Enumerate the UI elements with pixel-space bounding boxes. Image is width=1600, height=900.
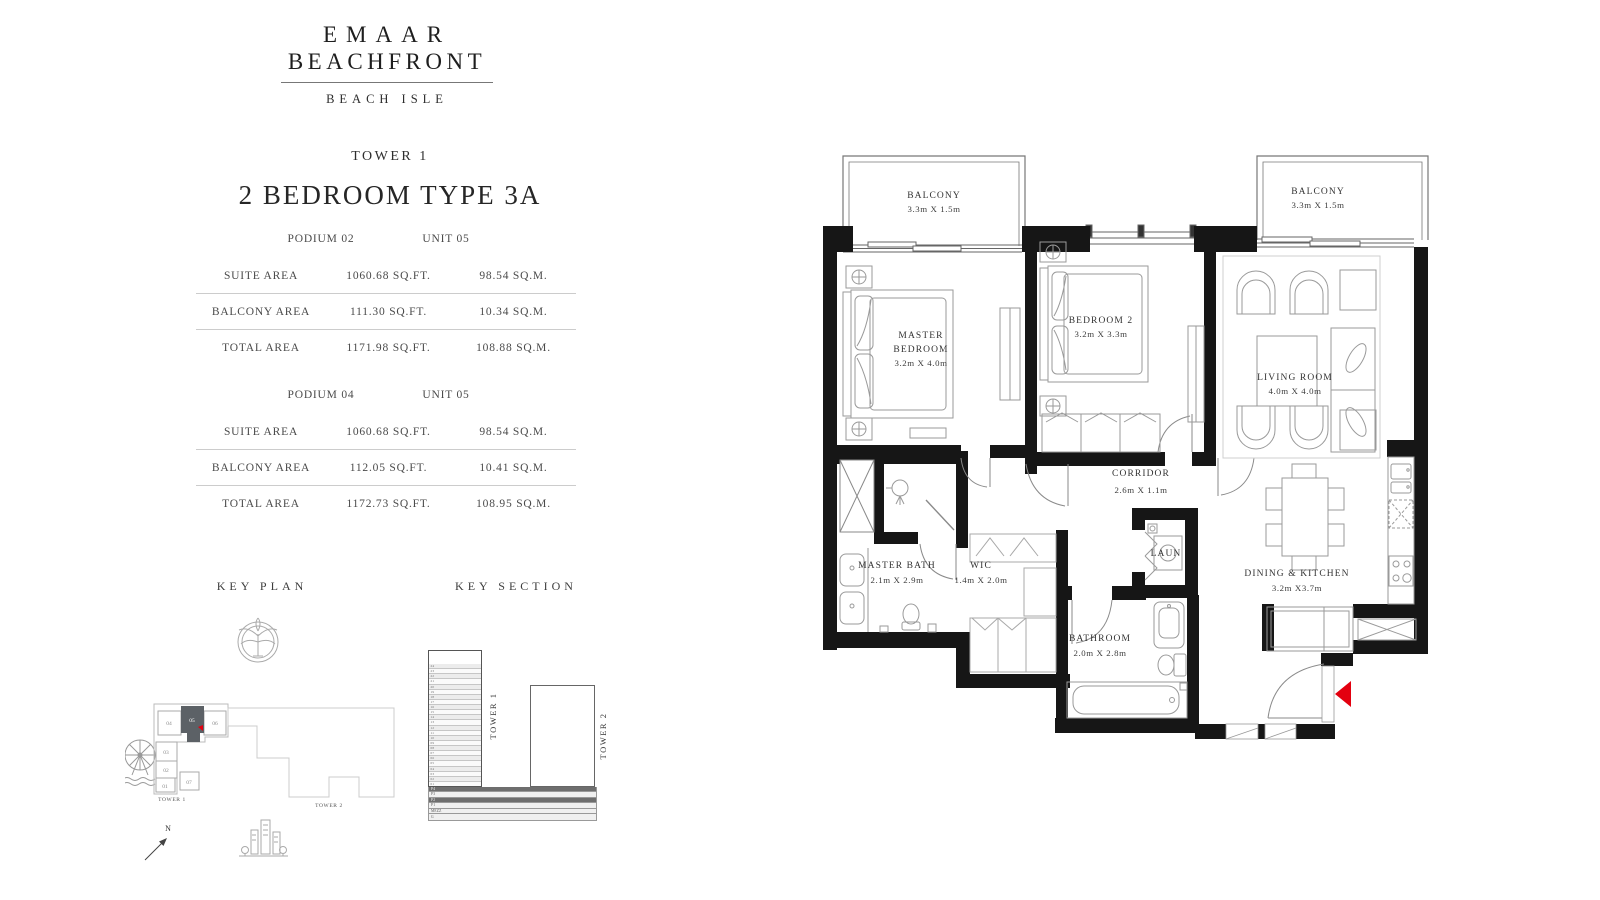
row-sqm: 10.34 SQ.M. xyxy=(451,306,576,318)
brand-divider xyxy=(281,82,493,83)
table-row: TOTAL AREA 1171.98 SQ.FT. 108.88 SQ.M. xyxy=(196,330,576,365)
row-sqft: 112.05 SQ.FT. xyxy=(326,462,451,474)
floor-row: 01 xyxy=(429,782,481,786)
master-bath-fixtures xyxy=(840,460,936,632)
brand-line2: BEACHFRONT xyxy=(281,49,493,75)
room-dims: 2.0m X 2.8m xyxy=(1073,648,1126,658)
brand-logo: EMAAR BEACHFRONT BEACH ISLE xyxy=(281,22,493,107)
table-row: BALCONY AREA 111.30 SQ.FT. 10.34 SQ.M. xyxy=(196,294,576,330)
balcony-right-rail xyxy=(1257,156,1428,240)
tower1-footprint-label: TOWER 1 xyxy=(158,797,186,803)
area-table-podium-04: PODIUM 04 UNIT 05 SUITE AREA 1060.68 SQ.… xyxy=(196,389,576,521)
room-dims: 3.2m X 4.0m xyxy=(894,358,947,368)
room-label: BEDROOM 2 xyxy=(1069,316,1134,326)
room-label: BALCONY xyxy=(907,191,961,201)
room-dims: 2.1m X 2.9m xyxy=(870,575,923,585)
north-arrow-icon: N xyxy=(145,824,171,860)
podium-row: G xyxy=(428,814,597,821)
ferris-wheel-icon xyxy=(125,740,155,786)
table-row: SUITE AREA 1060.68 SQ.FT. 98.54 SQ.M. xyxy=(196,258,576,294)
row-sqm: 98.54 SQ.M. xyxy=(451,426,576,438)
podium-levels: P4 P3 P2 P1 MEZZ G xyxy=(428,787,597,821)
key-section-diagram: 2423222120191817161514131211100908070605… xyxy=(420,640,620,830)
wic-closets xyxy=(970,534,1056,672)
room-dims: 3.2m X 3.3m xyxy=(1074,329,1127,339)
room-label: MASTER BATH xyxy=(858,561,936,571)
tower2-section-label: TOWER 2 xyxy=(598,696,608,776)
key-plan-heading: KEY PLAN xyxy=(196,579,328,594)
row-sqm: 108.95 SQ.M. xyxy=(451,498,576,510)
tower1-floor-stripes: 2423222120191817161514131211100908070605… xyxy=(429,664,481,786)
podium-label: PODIUM 04 xyxy=(258,389,384,401)
room-dims: 4.0m X 4.0m xyxy=(1268,386,1321,396)
unit-04-label: 04 xyxy=(166,721,172,727)
unit-01-label: 01 xyxy=(162,784,168,790)
row-sqm: 108.88 SQ.M. xyxy=(451,342,576,354)
row-sqft: 111.30 SQ.FT. xyxy=(326,306,451,318)
bathroom-fixtures xyxy=(1067,602,1187,718)
room-label: BATHROOM xyxy=(1069,634,1131,644)
room-labels: BALCONY 3.3m X 1.5m BALCONY 3.3m X 1.5m … xyxy=(858,187,1350,658)
room-label: MASTER xyxy=(898,331,943,341)
brochure-page: EMAAR BEACHFRONT BEACH ISLE TOWER 1 2 BE… xyxy=(0,0,1600,900)
row-sqft: 1060.68 SQ.FT. xyxy=(326,426,451,438)
svg-text:N: N xyxy=(165,824,171,833)
key-section-heading: KEY SECTION xyxy=(440,579,592,594)
floor-plan: BALCONY 3.3m X 1.5m BALCONY 3.3m X 1.5m … xyxy=(810,140,1440,750)
row-sqft: 1060.68 SQ.FT. xyxy=(326,270,451,282)
row-label: BALCONY AREA xyxy=(196,306,326,318)
row-label: BALCONY AREA xyxy=(196,462,326,474)
tower1-section-label: TOWER 1 xyxy=(488,676,498,756)
row-label: TOTAL AREA xyxy=(196,342,326,354)
unit-07-label: 07 xyxy=(186,780,192,786)
row-label: SUITE AREA xyxy=(196,426,326,438)
room-label: DINING & KITCHEN xyxy=(1244,569,1349,579)
room-dims: 3.3m X 1.5m xyxy=(907,204,960,214)
tower2-section xyxy=(530,685,595,787)
brand-line1: EMAAR xyxy=(281,22,493,48)
balcony-left-rail xyxy=(843,156,1025,246)
tower2-footprint: TOWER 2 xyxy=(228,708,394,809)
unit-number-label: UNIT 05 xyxy=(388,233,504,245)
page-title: 2 BEDROOM TYPE 3A xyxy=(196,180,584,211)
room-dims: 1.4m X 2.0m xyxy=(954,575,1007,585)
window-bedroom2 xyxy=(1086,225,1196,244)
unit-03-label: 03 xyxy=(163,750,169,756)
walls xyxy=(823,226,1428,739)
entry-arrow xyxy=(1335,681,1351,707)
area-table-podium-02: PODIUM 02 UNIT 05 SUITE AREA 1060.68 SQ.… xyxy=(196,233,576,365)
unit-number-label: UNIT 05 xyxy=(388,389,504,401)
row-label: TOTAL AREA xyxy=(196,498,326,510)
row-sqft: 1172.73 SQ.FT. xyxy=(326,498,451,510)
unit-02-label: 02 xyxy=(163,768,169,774)
window-master xyxy=(843,242,1022,252)
room-dims: 2.6m X 1.1m xyxy=(1114,485,1167,495)
tower2-footprint-label: TOWER 2 xyxy=(315,803,343,809)
dining-kitchen-furniture xyxy=(1266,457,1416,651)
living-room-furniture xyxy=(1223,256,1380,458)
row-sqm: 98.54 SQ.M. xyxy=(451,270,576,282)
bedroom2-furniture xyxy=(1040,242,1204,452)
unit-06-label: 06 xyxy=(212,721,218,727)
podium-label: PODIUM 02 xyxy=(258,233,384,245)
table-row: BALCONY AREA 112.05 SQ.FT. 10.41 SQ.M. xyxy=(196,450,576,486)
row-label: SUITE AREA xyxy=(196,270,326,282)
row-sqft: 1171.98 SQ.FT. xyxy=(326,342,451,354)
table-row: TOTAL AREA 1172.73 SQ.FT. 108.95 SQ.M. xyxy=(196,486,576,521)
tower-label: TOWER 1 xyxy=(196,149,584,165)
room-label: LIVING ROOM xyxy=(1257,373,1333,383)
city-skyline-icon xyxy=(239,820,288,856)
room-label: BALCONY xyxy=(1291,187,1345,197)
table-row: SUITE AREA 1060.68 SQ.FT. 98.54 SQ.M. xyxy=(196,414,576,450)
room-dims: 3.2m X3.7m xyxy=(1272,583,1322,593)
unit-heading: TOWER 1 2 BEDROOM TYPE 3A xyxy=(196,149,584,211)
key-plan-map: 04 05 06 03 02 01 07 TOWER 1 TOWER 2 N xyxy=(125,598,425,883)
brand-subtitle: BEACH ISLE xyxy=(281,92,493,107)
room-label: CORRIDOR xyxy=(1112,469,1170,479)
room-dims: 3.3m X 1.5m xyxy=(1291,200,1344,210)
window-living xyxy=(1257,237,1414,247)
tower1-section: 2423222120191817161514131211100908070605… xyxy=(428,650,482,787)
highlighted-unit-05 xyxy=(181,706,204,742)
unit-05-label: 05 xyxy=(189,718,195,724)
tower1-footprint: 04 05 06 03 02 01 07 TOWER 1 xyxy=(154,704,228,803)
room-label: WIC xyxy=(970,561,992,571)
row-sqm: 10.41 SQ.M. xyxy=(451,462,576,474)
palm-island-icon xyxy=(238,618,278,662)
room-label: LAUN xyxy=(1151,549,1182,559)
room-label: BEDROOM xyxy=(893,345,948,355)
